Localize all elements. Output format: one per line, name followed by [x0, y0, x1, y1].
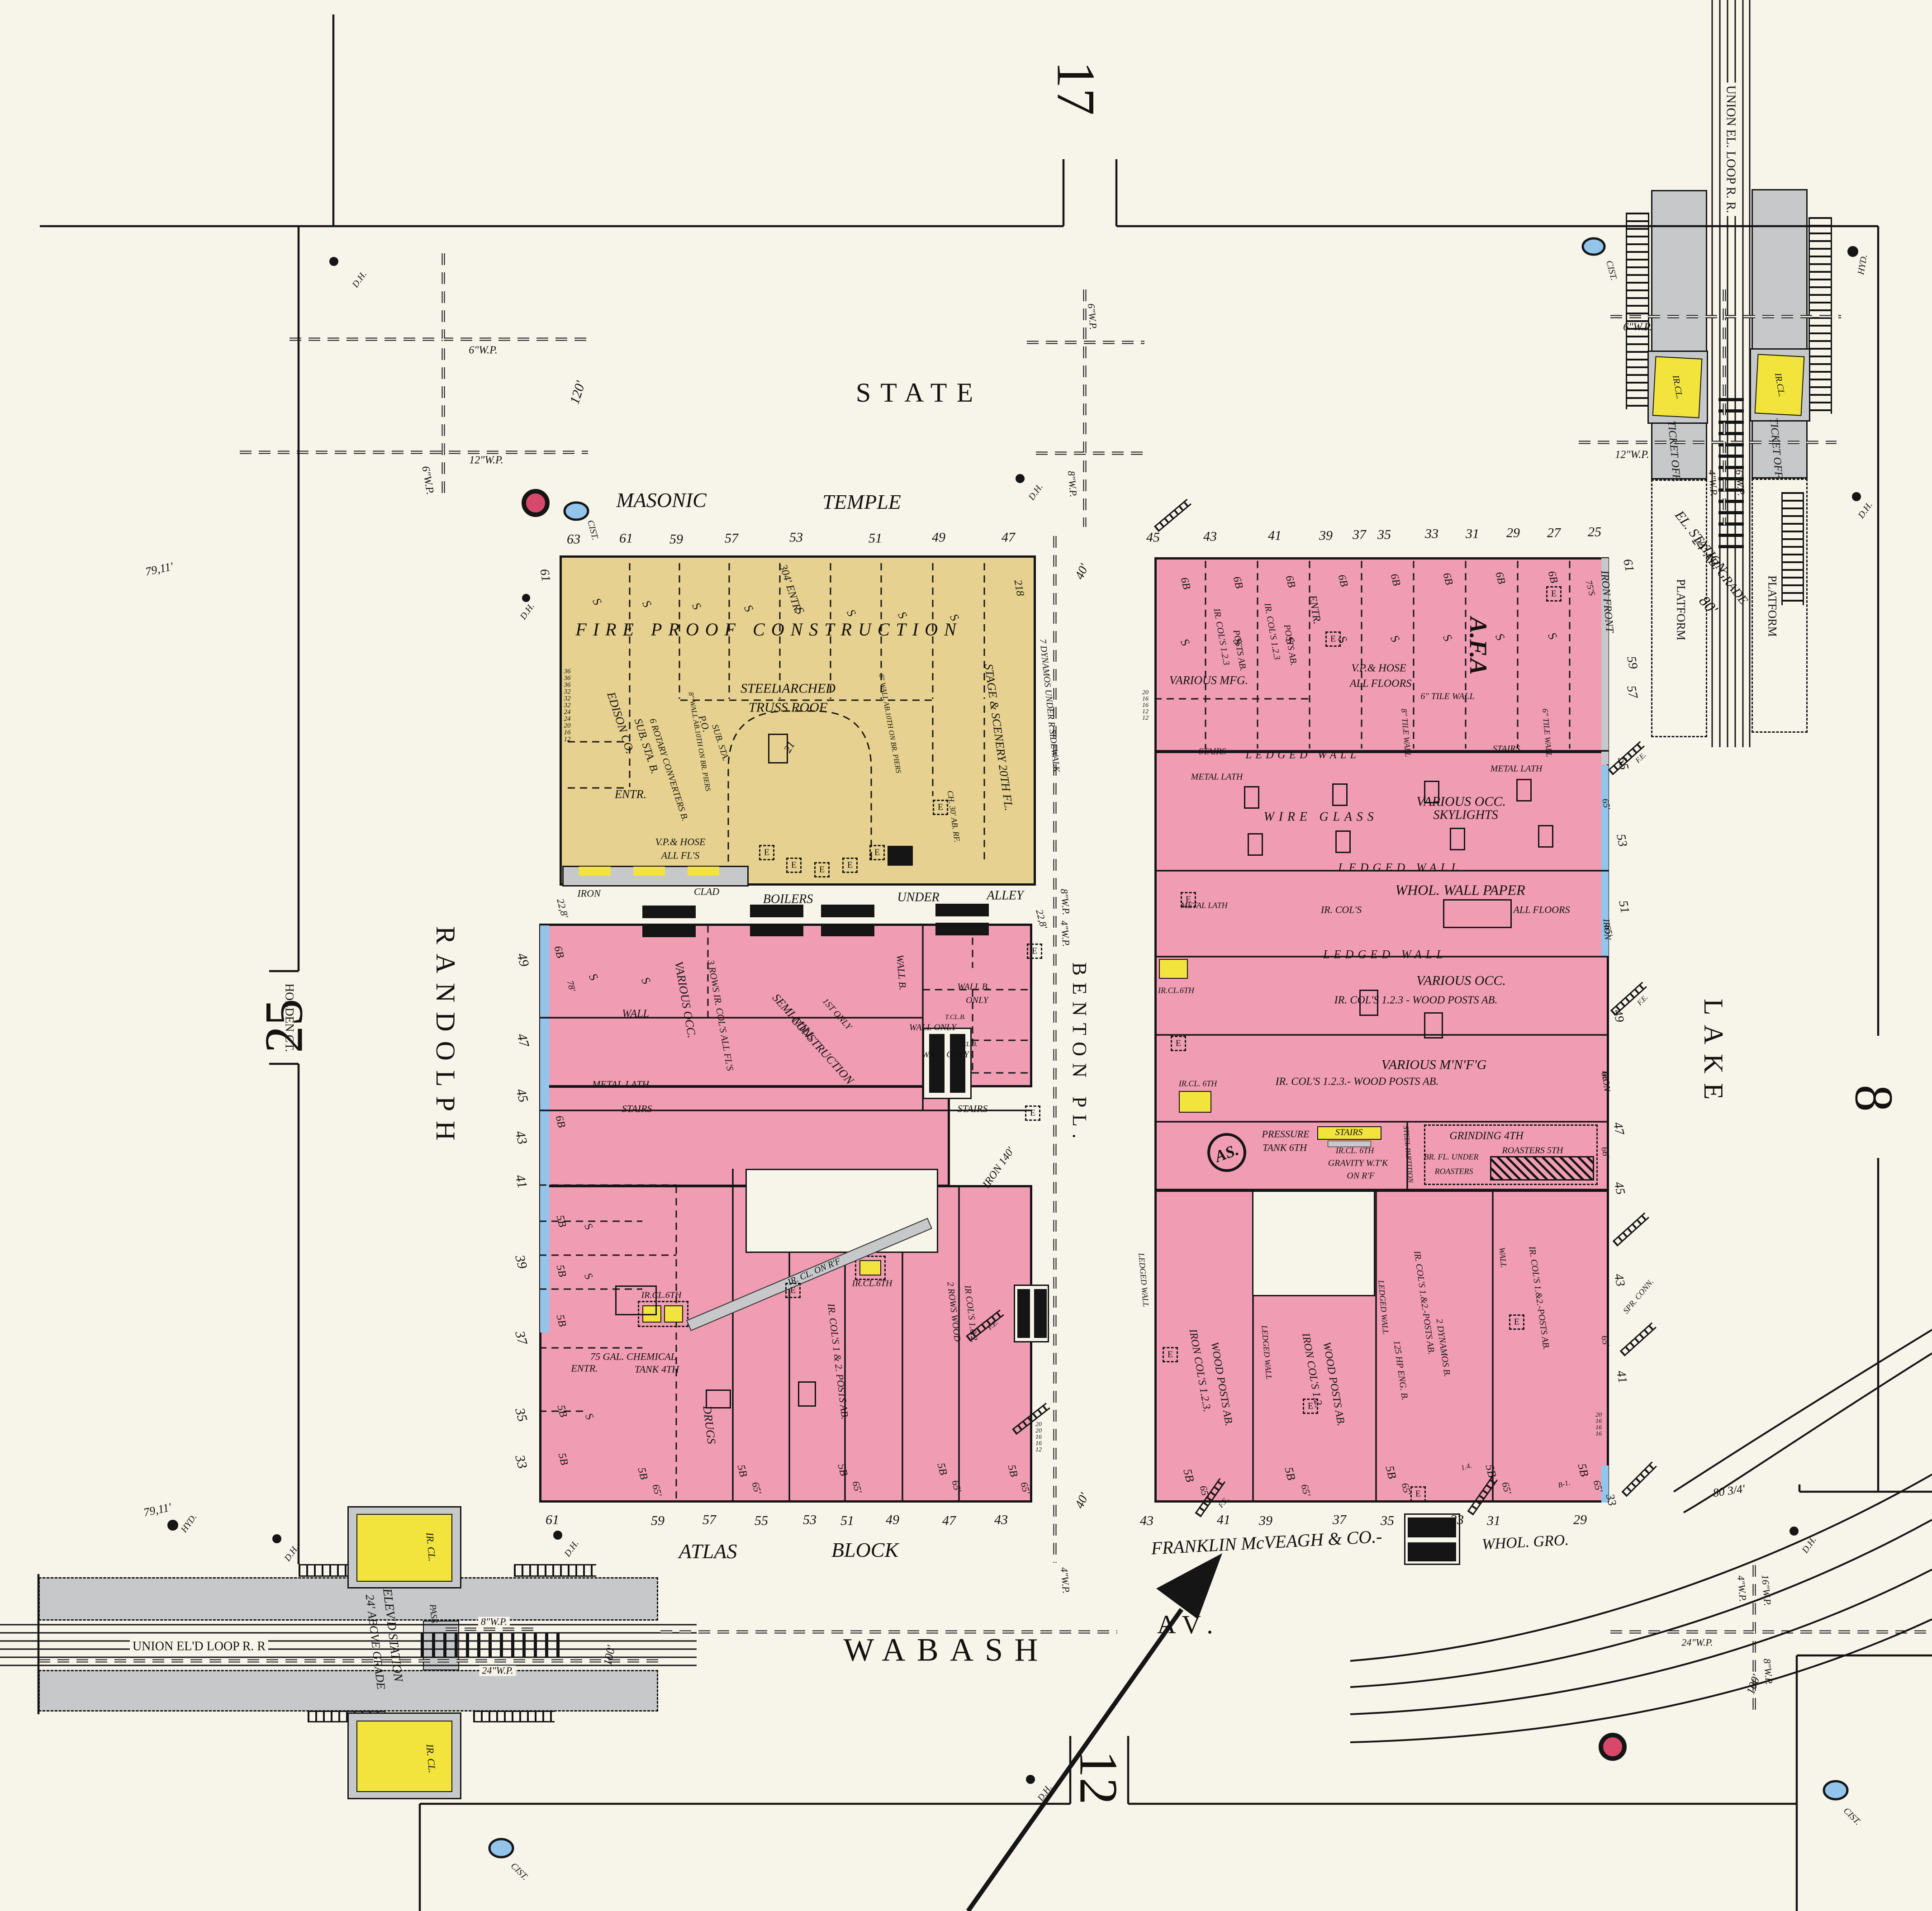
- label-east-0: 45: [1146, 530, 1160, 544]
- hose-house: [664, 1305, 683, 1323]
- label-central-20: ENTR.: [571, 1364, 598, 1374]
- label-masonic-1: STEEL ARCHED: [741, 681, 835, 695]
- label-masonic-30: 57: [725, 531, 738, 545]
- label-utilities-1: 12"W.P.: [469, 455, 503, 466]
- label-central-57: 51: [840, 1513, 854, 1527]
- label-stations-13: PASS.: [428, 1604, 439, 1626]
- vault-box: [888, 846, 913, 866]
- label-east-122: 66': [1599, 1146, 1610, 1159]
- label-masonic-34: 47: [1002, 530, 1015, 544]
- elevator-shaft: [1034, 1289, 1047, 1338]
- skylight-box: [1332, 783, 1348, 806]
- label-utilities-34: 8"W.P.: [1761, 1658, 1774, 1685]
- label-east-123: 65': [1599, 1335, 1610, 1347]
- hose-house: [1159, 959, 1188, 979]
- label-east-46: METAL LATH: [1491, 764, 1543, 774]
- label-central-56: 53: [803, 1513, 816, 1527]
- label-central-17: IR.CL.6TH: [852, 1279, 892, 1289]
- label-masonic-10: ENTR.: [615, 788, 646, 800]
- block-outlines: [38, 14, 1932, 1911]
- label-masonic-11: V.P.& HOSE: [655, 837, 705, 848]
- label-streets-0: STATE: [856, 379, 983, 407]
- boiler-box: [750, 905, 803, 917]
- label-east-65: STAIRS: [1335, 1128, 1363, 1138]
- label-stations-14: IR. CL.: [424, 1532, 437, 1562]
- label-streets-8: TEMPLE: [822, 491, 901, 513]
- label-central-58: 49: [886, 1513, 899, 1527]
- label-eletters-1: E: [791, 861, 797, 870]
- label-eletters-2: E: [819, 865, 825, 875]
- label-streets-3: WABASH: [843, 1633, 1049, 1667]
- warehouse-box: [1408, 1542, 1456, 1561]
- skylight-box: [798, 1381, 816, 1407]
- label-east-106: 31: [1487, 1513, 1500, 1527]
- label-masonic-26: 61: [537, 568, 553, 583]
- label-east-50: LEDGED WALL: [1338, 861, 1462, 873]
- skylight-box: [1538, 825, 1553, 848]
- label-central-9: WALL ONLY: [909, 1023, 956, 1033]
- label-eletters-14: E: [1415, 1489, 1421, 1499]
- label-central-10: WALL ONLY: [922, 1050, 969, 1060]
- label-east-68: ON R'F: [1347, 1171, 1375, 1181]
- warehouse-box: [1408, 1517, 1456, 1537]
- label-streets-10: BLOCK: [831, 1539, 898, 1561]
- boiler-box: [642, 906, 696, 918]
- label-east-111: 55: [1615, 756, 1631, 771]
- skylight-box: [1443, 899, 1512, 928]
- label-east-118: 41: [1614, 1369, 1629, 1384]
- boiler-box: [750, 924, 803, 936]
- label-eletters-10: E: [1330, 635, 1336, 644]
- roasters-box: [1490, 1156, 1594, 1181]
- label-streets-7: MASONIC: [616, 489, 706, 511]
- label-east-41: 20 16 16 12 12: [1142, 690, 1149, 721]
- label-central-12: T.CL.B.: [957, 1041, 978, 1048]
- label-east-52: WHOL. WALL PAPER: [1395, 882, 1525, 897]
- label-east-42: STAIRS: [1199, 747, 1226, 757]
- label-stations-15: IR. CL.: [424, 1744, 437, 1773]
- label-eletters-4: E: [874, 848, 880, 858]
- boiler-box: [821, 905, 874, 917]
- label-east-3: 39: [1319, 528, 1333, 542]
- skylight-box: [1248, 833, 1263, 856]
- boiler-box: [821, 924, 874, 936]
- label-east-60: IR. COL'S 1.2.3.- WOOD POSTS AB.: [1276, 1076, 1439, 1088]
- label-east-44: LEDGED WALL: [1246, 750, 1360, 761]
- label-east-49: SKYLIGHTS: [1433, 808, 1498, 821]
- label-east-54: ALL FLOORS: [1514, 905, 1570, 915]
- label-central-29: 78': [565, 980, 577, 993]
- label-central-14: STAIRS: [622, 1104, 652, 1114]
- label-east-7: 31: [1466, 526, 1479, 541]
- label-central-11: T.CL.B.: [945, 1014, 966, 1021]
- label-east-125: IRON: [1600, 1070, 1612, 1092]
- hose-house: [859, 1260, 881, 1276]
- label-eletters-6: E: [1032, 947, 1037, 956]
- label-utilities-26: 8"W.P.: [1059, 888, 1071, 915]
- label-central-52: 61: [546, 1513, 559, 1527]
- label-eletters-8: E: [1186, 895, 1191, 905]
- label-masonic-27: 63: [567, 532, 580, 546]
- label-east-108: 61: [1621, 558, 1636, 573]
- label-east-104: 35: [1381, 1513, 1394, 1527]
- label-east-84: WALL: [1498, 1247, 1508, 1268]
- label-east-17: V.P.& HOSE: [1351, 663, 1406, 674]
- label-east-47: VARIOUS OCC.: [1416, 794, 1506, 808]
- label-sheets-2: 8: [1846, 1085, 1902, 1112]
- label-stations-5: PLATFORM: [1675, 579, 1687, 640]
- label-central-13: METAL LATH: [592, 1080, 649, 1090]
- label-east-19: A.F.A: [1466, 617, 1491, 675]
- label-utilities-24: 4"W.P.: [1706, 469, 1719, 497]
- label-east-61: IR.CL. 6TH: [1179, 1080, 1217, 1088]
- label-east-110: 57: [1624, 684, 1640, 699]
- label-utilities-25: 16"W.P.: [1733, 465, 1747, 497]
- label-eletters-16: E: [790, 1286, 796, 1295]
- label-sheets-3: 12: [1070, 1750, 1127, 1805]
- label-east-56: IR.CL.6TH: [1158, 986, 1194, 995]
- label-east-66: IR.CL. 6TH: [1336, 1147, 1374, 1155]
- label-east-64: TANK 6TH: [1263, 1143, 1307, 1153]
- label-central-16: IR.CL.6TH: [641, 1291, 682, 1300]
- boiler-box: [642, 925, 696, 937]
- label-east-101: 41: [1217, 1513, 1230, 1527]
- label-east-53: IR. COL'S: [1321, 905, 1362, 915]
- label-east-58: IR. COL'S 1.2.3 - WOOD POSTS AB.: [1334, 995, 1498, 1006]
- boiler-box: [935, 904, 989, 916]
- label-central-7: WALL B.: [957, 982, 990, 992]
- label-central-21: TANK 4TH: [635, 1365, 679, 1375]
- label-masonic-12: ALL FL'S: [661, 851, 699, 861]
- skylight-box: [1424, 1012, 1443, 1038]
- label-east-20: 6" TILE WALL: [1420, 692, 1474, 702]
- boiler-box: [935, 923, 989, 935]
- label-east-100: 43: [1140, 1513, 1154, 1527]
- label-east-6: 33: [1425, 526, 1438, 541]
- label-streets-1: RANDOLPH: [432, 926, 460, 1150]
- label-east-71: ROASTERS 5TH: [1502, 1146, 1563, 1156]
- label-central-55: 55: [755, 1513, 768, 1527]
- label-utilities-0: 6"W.P.: [469, 345, 497, 356]
- label-east-73: ROASTERS: [1435, 1167, 1473, 1176]
- label-east-124: IRON: [1601, 919, 1613, 940]
- label-east-8: 29: [1506, 526, 1520, 540]
- label-eletters-12: E: [1168, 1350, 1173, 1360]
- label-masonic-17: 218: [1012, 579, 1026, 597]
- label-masonic-29: 59: [669, 532, 683, 546]
- label-east-2: 41: [1268, 528, 1282, 542]
- label-central-60: 43: [994, 1513, 1008, 1527]
- label-masonic-2: TRUSS ROOF: [749, 700, 827, 714]
- label-central-59: 47: [942, 1513, 956, 1527]
- label-utilities-30: 24"W.P.: [479, 1666, 516, 1676]
- label-stations-6: PLATFORM: [1766, 575, 1778, 637]
- label-east-72: BR. FL. UNDER: [1424, 1153, 1479, 1162]
- label-central-19: 75 GAL. CHEMICAL: [590, 1352, 676, 1362]
- label-utilities-32: 4"W.P.: [1735, 1575, 1748, 1602]
- label-east-119: 65': [1600, 798, 1611, 811]
- label-east-1: 43: [1203, 529, 1217, 543]
- label-masonic-28: 61: [619, 531, 633, 545]
- label-east-117: 43: [1612, 1272, 1627, 1287]
- label-east-116: 45: [1612, 1181, 1627, 1195]
- label-east-5: 35: [1377, 527, 1391, 541]
- label-eletters-3: E: [847, 861, 853, 870]
- label-utilities-20: 6"W.P.: [1086, 303, 1098, 330]
- label-east-48: WIRE GLASS: [1264, 810, 1378, 823]
- skylight-box: [1450, 828, 1465, 850]
- label-utilities-28: 4"W.P.: [1059, 1567, 1071, 1594]
- label-masonic-21: BOILERS: [763, 892, 813, 906]
- label-east-113: 51: [1616, 899, 1632, 914]
- label-eletters-5: E: [938, 803, 943, 812]
- skylight-box: [1516, 779, 1532, 801]
- label-eletters-13: E: [1308, 1402, 1313, 1411]
- label-eletters-11: E: [1551, 589, 1557, 599]
- label-masonic-33: 49: [932, 530, 945, 544]
- label-east-45: STAIRS: [1493, 744, 1520, 754]
- label-utilities-21: 8"W.P.: [1066, 470, 1078, 498]
- label-east-10: 25: [1588, 525, 1601, 539]
- label-masonic-0: FIRE PROOF CONSTRUCTION: [575, 620, 962, 639]
- label-eletters-7: E: [1030, 1109, 1035, 1118]
- label-east-18: ALL FLOORS: [1350, 678, 1411, 690]
- skylight-box: [1244, 786, 1259, 809]
- label-east-67: GRAVITY W.T'K: [1328, 1159, 1388, 1168]
- label-utilities-35: 24"W.P.: [1679, 1638, 1715, 1648]
- label-east-59: VARIOUS M'N'F'G: [1381, 1057, 1487, 1072]
- label-sheets-0: 17: [1048, 61, 1104, 115]
- label-east-112: 53: [1614, 833, 1629, 848]
- label-masonic-44: 36 36 36 32 32 32 24 24 20 16 12: [564, 669, 571, 743]
- label-streets-9: ATLAS: [679, 1541, 737, 1562]
- label-stations-1: UNION EL'D LOOP R. R: [130, 1640, 268, 1653]
- label-central-53: 59: [651, 1513, 665, 1527]
- elevator-shaft: [929, 1034, 945, 1093]
- label-eletters-0: E: [764, 848, 769, 858]
- label-masonic-19: IRON: [577, 889, 600, 899]
- label-utilities-27: 4"W.P.: [1059, 920, 1071, 947]
- label-central-5: WALL: [622, 1009, 649, 1020]
- skylight-box: [1335, 830, 1351, 853]
- label-utilities-22: 6"W.P.: [1623, 322, 1652, 333]
- label-east-9: 27: [1547, 526, 1561, 540]
- label-east-103: 37: [1333, 1513, 1346, 1527]
- label-utilities-23: 12"W.P.: [1615, 450, 1649, 461]
- map-linework: [0, 0, 1932, 1911]
- label-east-63: PRESSURE: [1262, 1129, 1309, 1140]
- label-east-57: VARIOUS OCC.: [1416, 973, 1506, 987]
- label-masonic-23: ALLEY: [987, 889, 1024, 902]
- label-east-107: 29: [1573, 1513, 1587, 1527]
- label-masonic-22: UNDER: [897, 891, 939, 904]
- north-arrow: [968, 1553, 1222, 1911]
- sanborn-map-sheet: 1725812STATERANDOLPHLAKEWABASHAV.BENTON …: [0, 0, 1932, 1911]
- label-east-115: 47: [1611, 1121, 1626, 1136]
- label-east-86: 20 16 16 16: [1595, 1412, 1602, 1437]
- label-east-114: 49: [1611, 1008, 1626, 1023]
- label-masonic-32: 51: [869, 531, 882, 545]
- label-central-8: ONLY: [966, 996, 988, 1005]
- label-east-4: 37: [1353, 527, 1366, 541]
- label-masonic-20: CLAD: [694, 887, 719, 897]
- label-east-109: 59: [1624, 655, 1640, 670]
- label-eletters-9: E: [1176, 1039, 1181, 1048]
- label-central-15: STAIRS: [958, 1104, 988, 1114]
- label-utilities-29: 8"W.P.: [478, 1617, 510, 1627]
- hose-house: [1179, 1091, 1211, 1113]
- label-stations-0: UNION EL. LOOP R. R.: [1724, 83, 1737, 216]
- label-east-43: METAL LATH: [1191, 773, 1243, 782]
- label-utilities-33: 16"W.P.: [1760, 1574, 1773, 1607]
- label-streets-4: AV.: [1157, 1611, 1222, 1638]
- label-streets-2: LAKE: [1699, 999, 1728, 1109]
- label-east-11: VARIOUS MFG.: [1169, 674, 1248, 686]
- label-east-102: 39: [1259, 1513, 1272, 1527]
- label-central-54: 57: [703, 1513, 716, 1527]
- label-central-51: 20 20 16 16 12: [1035, 1422, 1042, 1453]
- label-streets-6: HOLDEN CT.: [283, 983, 295, 1052]
- label-streets-5: BENTON PL.: [1069, 963, 1090, 1146]
- elevator-shaft: [1017, 1289, 1030, 1338]
- label-east-55: LEDGED WALL: [1323, 948, 1447, 960]
- label-masonic-31: 53: [789, 530, 803, 544]
- label-eletters-15: E: [1514, 1318, 1519, 1327]
- label-east-70: GRINDING 4TH: [1449, 1131, 1523, 1142]
- label-east-105: 33: [1450, 1513, 1464, 1527]
